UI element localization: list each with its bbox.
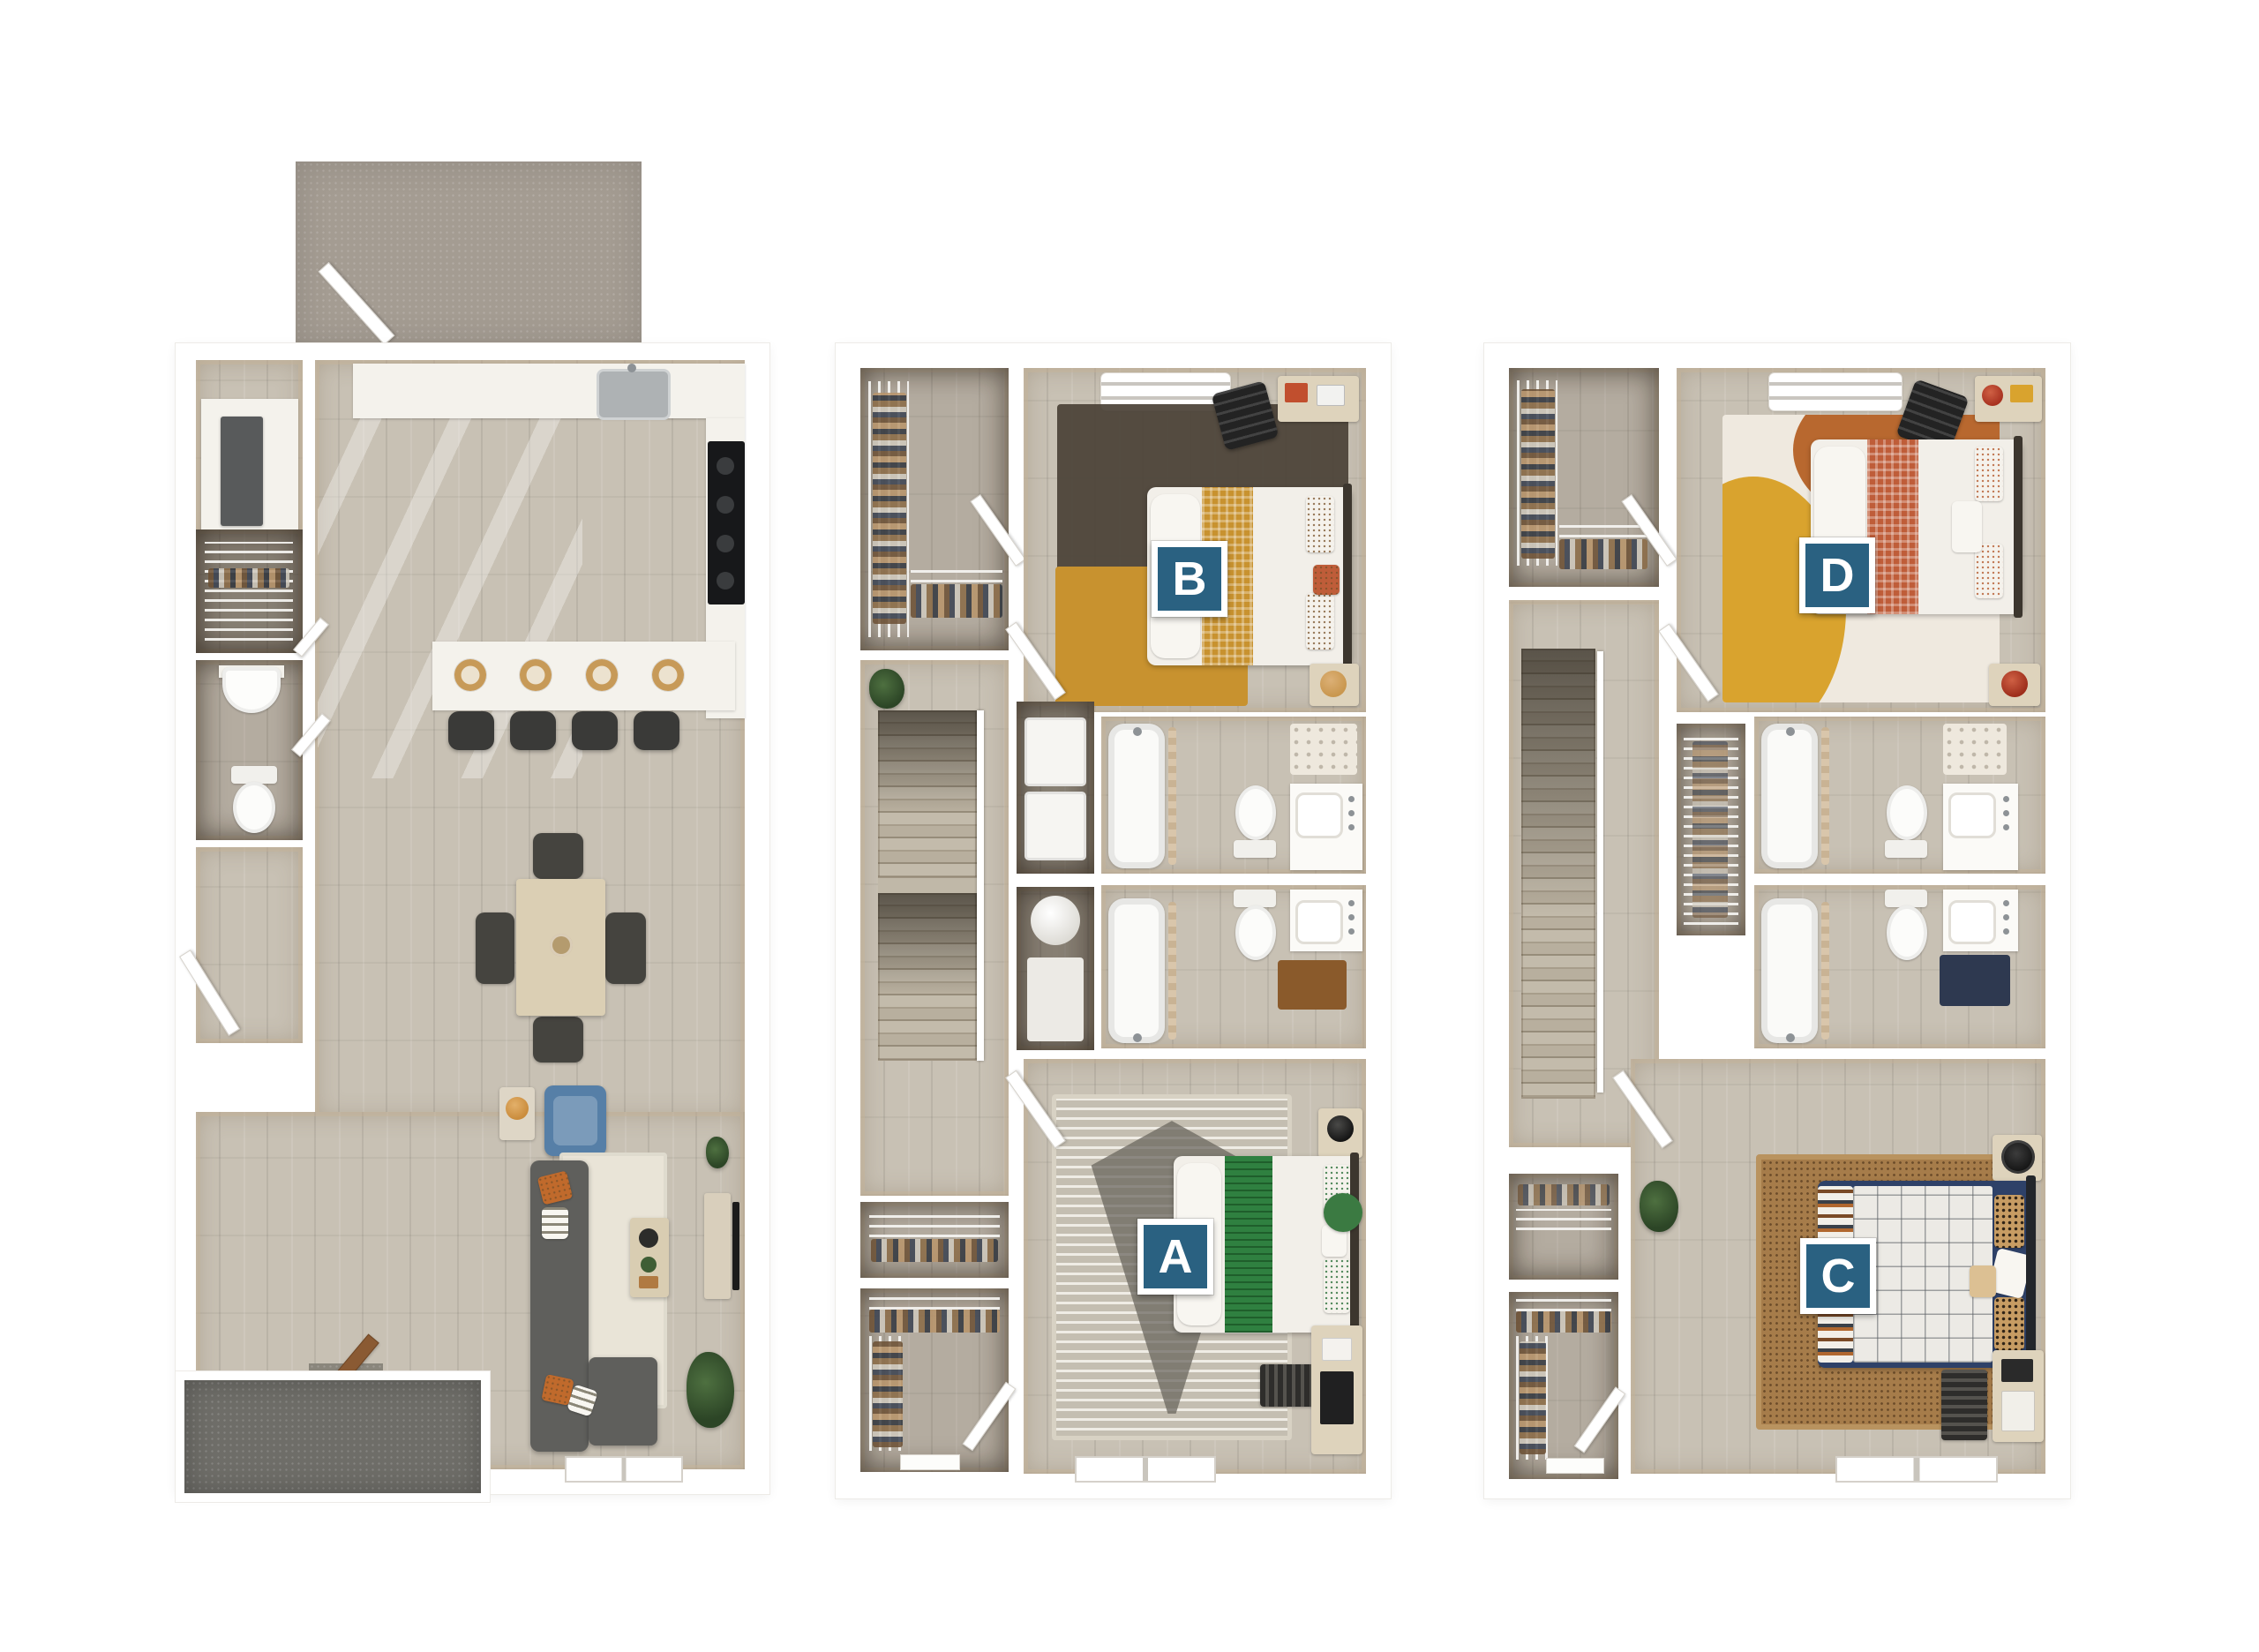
bar-stool: [634, 711, 679, 750]
closet-clothes-row: [1516, 1311, 1611, 1333]
bathroom-3a: [1754, 717, 2045, 874]
bed-b-pillow: [1306, 593, 1334, 650]
bath-rug-floral: [1943, 724, 2007, 775]
faucet-knob: [2003, 900, 2009, 906]
nightstand-a: [1318, 1108, 1362, 1158]
pantry-closet: [196, 529, 303, 653]
patio: [296, 161, 642, 346]
front-stoop: [184, 1380, 481, 1493]
burner: [717, 496, 734, 514]
utility-closet: [1017, 887, 1094, 1050]
headboard: [2014, 436, 2023, 618]
refrigerator: [221, 417, 263, 526]
toilet-tank: [1885, 840, 1927, 858]
toilet: [1235, 785, 1276, 840]
bathtub: [1761, 898, 1818, 1043]
stair-hall-2: [860, 660, 1009, 1196]
closet-wire-shelf: [911, 568, 1002, 582]
closet-items: [1692, 741, 1728, 918]
hall-closet: [196, 847, 303, 1043]
tub-faucet: [1133, 1033, 1142, 1042]
center-pillow: [1952, 501, 1982, 552]
table-decor: [639, 1228, 658, 1248]
hall-plant: [869, 669, 904, 709]
headboard: [1350, 1153, 1359, 1336]
faucet-knob: [1348, 824, 1355, 830]
bed-a-pillow: [1324, 1258, 1350, 1313]
kitchen-faucet: [627, 364, 636, 372]
shower-curtain: [1168, 727, 1176, 865]
place-setting: [520, 659, 552, 691]
floor-plan-canvas: B A D C: [0, 0, 2259, 1652]
bedroom-c-plant: [1640, 1181, 1678, 1232]
black-lamp: [1327, 1115, 1354, 1142]
tub-faucet: [1133, 727, 1142, 736]
dining-chair: [476, 912, 514, 984]
walkin-closet-b: [860, 368, 1009, 650]
stair-railing: [977, 710, 984, 1061]
faucet-knob: [1348, 928, 1355, 935]
headboard: [2026, 1175, 2036, 1373]
kitchen-counter-top: [353, 364, 745, 418]
bar-stool: [448, 711, 494, 750]
closet-clothes-side: [873, 1341, 903, 1447]
toilet: [1235, 905, 1276, 960]
wire-shelf: [1516, 1299, 1611, 1311]
place-setting: [586, 659, 618, 691]
bedroom-a-window: [1075, 1456, 1216, 1483]
dresser-a: [1311, 1325, 1362, 1454]
chair-cushion: [553, 1096, 597, 1145]
toilet-tank: [1234, 890, 1276, 907]
burner: [717, 457, 734, 475]
bed-b-pillow: [1306, 496, 1334, 552]
bath-vanity: [1290, 890, 1362, 951]
dryer: [1024, 792, 1086, 860]
bedroom-c-badge: C: [1800, 1238, 1876, 1314]
faucet-knob: [1348, 914, 1355, 920]
red-ball-lamp: [2001, 671, 2028, 697]
bath-vanity: [1943, 890, 2018, 951]
nightstand-d: [1989, 664, 2040, 706]
faucet-knob: [2003, 928, 2009, 935]
faucet-knob: [1348, 796, 1355, 802]
utility-unit: [1027, 957, 1084, 1041]
desk-b: [1278, 376, 1359, 422]
bedroom-b-badge: B: [1152, 541, 1227, 617]
vanity-sink: [1295, 792, 1343, 838]
vanity-sink: [1948, 900, 1996, 944]
dining-chair: [533, 1017, 583, 1063]
water-heater: [1031, 896, 1080, 945]
table-lamp: [506, 1097, 529, 1120]
desk-art-red: [1285, 383, 1308, 402]
stair-shadow: [878, 710, 977, 878]
bath-vanity: [1943, 784, 2018, 870]
faucet-knob: [2003, 914, 2009, 920]
walkin-closet-d: [1509, 368, 1659, 587]
bedroom-d-badge: D: [1799, 537, 1875, 613]
ceiling-light: [1769, 373, 1902, 410]
nightstand-b: [1310, 664, 1359, 706]
dining-chair: [533, 833, 583, 879]
leopard-pillow: [1994, 1195, 2024, 1248]
linen-closet-2: [860, 1202, 1009, 1278]
dining-table: [516, 879, 605, 1016]
tan-pillow: [1970, 1265, 1996, 1297]
closet-wire-shelf: [1559, 525, 1647, 537]
bath-rug-navy: [1940, 955, 2010, 1006]
closet-items: [871, 1239, 998, 1262]
tv-screen: [732, 1202, 739, 1290]
door-mat: [1546, 1458, 1604, 1474]
faucet-knob: [1348, 810, 1355, 816]
closet-items: [1518, 1184, 1610, 1205]
stair-railing: [1597, 651, 1603, 1093]
toilet-tank: [1234, 840, 1276, 858]
dresser-tv: [1320, 1371, 1354, 1424]
door-mat: [900, 1454, 960, 1470]
toilet: [1887, 905, 1927, 960]
vanity-sink: [1295, 900, 1343, 944]
table-centerpiece: [550, 934, 573, 957]
desk-book-yellow: [2010, 385, 2033, 402]
bar-stool: [510, 711, 556, 750]
pantry-items: [208, 568, 289, 588]
burner: [717, 572, 734, 589]
staircase-upper-run: [878, 710, 977, 878]
coffee-table: [630, 1218, 669, 1297]
accent-pillow-rust: [1313, 565, 1340, 595]
fiddle-leaf-plant: [687, 1352, 734, 1428]
ball-lamp: [1320, 671, 1347, 697]
closet-clothes-row: [911, 584, 1002, 618]
table-book: [639, 1276, 658, 1288]
dresser-decor: [1322, 1338, 1352, 1361]
bedroom-a-badge: A: [1137, 1219, 1213, 1295]
media-console: [704, 1193, 731, 1299]
faucet-knob: [1348, 900, 1355, 906]
sofa-pillow-striped: [542, 1207, 568, 1239]
bath-vanity: [1290, 784, 1362, 870]
desk-d: [1975, 376, 2042, 422]
stair-shadow: [878, 893, 977, 1061]
bathroom-2b: [1101, 885, 1366, 1048]
table-plant: [641, 1257, 657, 1273]
dresser-box: [2001, 1359, 2033, 1382]
wire-shelf: [869, 1295, 1000, 1310]
accent-chair-blue: [544, 1085, 606, 1156]
linen-closet-3: [1677, 724, 1745, 935]
shelf-plant: [706, 1137, 729, 1168]
toilet: [1887, 785, 1927, 840]
closet-clothes: [1521, 389, 1555, 559]
bathroom-3b: [1754, 885, 2045, 1048]
walkin-closet-a: [860, 1288, 1009, 1472]
closet-clothes-row: [869, 1310, 1000, 1333]
place-setting: [454, 659, 486, 691]
shoe-closet-3: [1509, 1174, 1618, 1280]
vanity-sink: [1948, 792, 1996, 838]
powder-toilet-bowl: [233, 782, 275, 833]
bar-stool: [572, 711, 618, 750]
dresser-screen: [2001, 1391, 2035, 1431]
walkin-closet-c: [1509, 1292, 1618, 1479]
faucet-knob: [2003, 810, 2009, 816]
staircase-run: [1521, 649, 1595, 1099]
bedroom-c-window: [1835, 1456, 1998, 1483]
sectional-chaise: [589, 1357, 657, 1445]
leopard-pillow: [1994, 1297, 2024, 1350]
nightstand-c: [1993, 1135, 2042, 1181]
staircase-lower-run: [878, 893, 977, 1061]
tub-faucet: [1786, 727, 1795, 736]
closet-clothes-side: [1520, 1341, 1546, 1454]
black-round-lamp: [2001, 1140, 2035, 1174]
stair-shadow: [1521, 649, 1595, 1099]
bathtub: [1761, 724, 1818, 868]
shower-curtain: [1168, 902, 1176, 1040]
tub-faucet: [1786, 1033, 1795, 1042]
faucet-knob: [2003, 796, 2009, 802]
bed-d-pillow: [1975, 447, 2003, 501]
bench-c: [1941, 1370, 1987, 1440]
bedroom-b: [1024, 368, 1366, 712]
closet-clothes: [873, 393, 906, 624]
pantry-wire-shelves: [205, 542, 293, 641]
faucet-knob: [2003, 824, 2009, 830]
burner: [717, 535, 734, 552]
stair-landing: [878, 878, 977, 893]
place-setting: [652, 659, 684, 691]
bathroom-2a: [1101, 717, 1366, 874]
wire-shelf: [869, 1211, 1000, 1237]
powder-room: [196, 660, 303, 840]
headboard: [1343, 484, 1352, 669]
kitchen-sink: [597, 369, 671, 420]
wire-shelf: [1516, 1209, 1611, 1230]
shower-curtain: [1821, 727, 1829, 865]
green-pouf: [1324, 1193, 1362, 1232]
living-room-window: [565, 1456, 683, 1483]
range-cooktop: [708, 441, 745, 604]
bath-rug-floral: [1290, 724, 1357, 775]
powder-toilet-tank: [231, 766, 277, 784]
dining-chair: [605, 912, 646, 984]
bed-a-throw: [1225, 1156, 1272, 1333]
bath-rug-brown: [1278, 960, 1347, 1010]
red-lamp: [1982, 385, 2003, 406]
laundry-closet: [1017, 702, 1094, 874]
closet-clothes-row: [1559, 539, 1647, 569]
washer: [1024, 717, 1086, 786]
dresser-c: [1993, 1350, 2044, 1442]
bathtub: [1108, 724, 1165, 868]
bathtub: [1108, 898, 1165, 1043]
laptop: [1317, 385, 1345, 406]
toilet-tank: [1885, 890, 1927, 907]
shower-curtain: [1821, 902, 1829, 1040]
